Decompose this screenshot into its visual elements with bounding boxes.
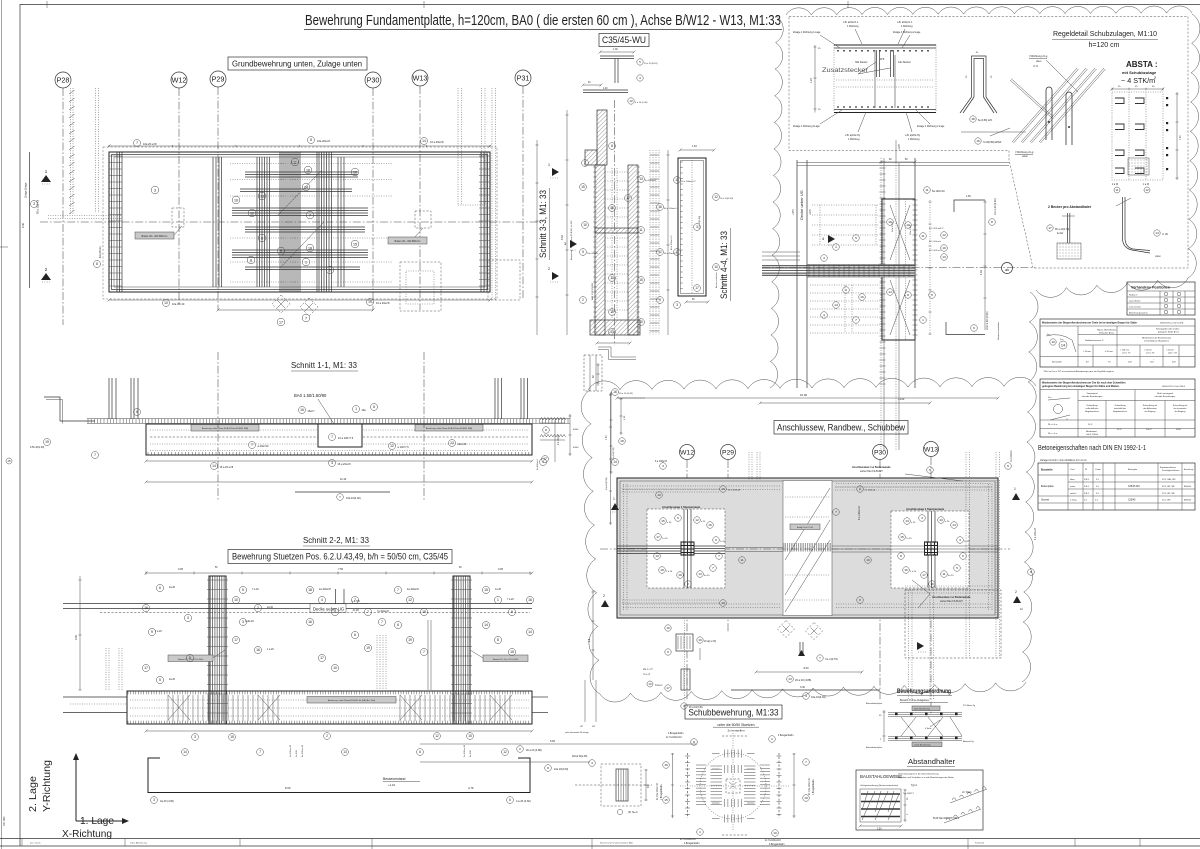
svg-text:10a 20w=8: 10a 20w=8 bbox=[587, 253, 599, 255]
svg-text:Expositionsklasse: Expositionsklasse bbox=[1160, 466, 1177, 469]
svg-text:16a 20w=8: 16a 20w=8 bbox=[317, 139, 330, 143]
svg-text:12: 12 bbox=[1145, 188, 1149, 192]
svg-text:C35/45 WU: C35/45 WU bbox=[1128, 486, 1140, 488]
svg-text:16: 16 bbox=[664, 763, 668, 767]
svg-text:4∅: 4∅ bbox=[1086, 361, 1089, 364]
svg-text:11: 11 bbox=[925, 188, 929, 192]
svg-text:6: 6 bbox=[509, 798, 511, 802]
svg-text:90 a 14(2.70): 90 a 14(2.70) bbox=[1055, 228, 1069, 231]
svg-text:3: 3 bbox=[662, 464, 664, 468]
svg-text:~ 4 STK/m: ~ 4 STK/m bbox=[1121, 76, 1155, 85]
svg-text:P29: P29 bbox=[212, 75, 225, 84]
svg-text:4a 100: 4a 100 bbox=[470, 750, 472, 757]
svg-text:Bewehrung Stuetzen Pos. 6.2.U.: Bewehrung Stuetzen Pos. 6.2.U.43,49, b/h… bbox=[232, 552, 448, 562]
svg-text:14: 14 bbox=[484, 623, 488, 627]
svg-text:Anschlussew, Randbew., Schubbe: Anschlussew, Randbew., Schubbew bbox=[777, 423, 905, 433]
svg-text:8: 8 bbox=[310, 138, 312, 142]
svg-text:Unterstützungen für die obere: Unterstützungen für die obere Bewehrung bbox=[898, 773, 939, 776]
svg-text:Schweißung: Schweißung bbox=[1086, 405, 1097, 407]
svg-text:1 a 20: 1 a 20 bbox=[267, 648, 274, 651]
svg-text:1.Bougainhahn: 1.Bougainhahn bbox=[684, 843, 700, 845]
svg-text:> 100 mm: > 100 mm bbox=[1120, 349, 1129, 352]
svg-text:8: 8 bbox=[96, 262, 98, 266]
svg-text:Bewehrungsnachw.: Bewehrungsnachw. bbox=[1129, 311, 1148, 314]
svg-text:4a 100w=8: 4a 100w=8 bbox=[407, 588, 419, 591]
svg-text:14: 14 bbox=[212, 464, 216, 468]
svg-text:P30: P30 bbox=[367, 76, 380, 85]
svg-text:Schnitt 2-2, M1: 33: Schnitt 2-2, M1: 33 bbox=[303, 535, 369, 545]
svg-text:Bemerkung: Bemerkung bbox=[1184, 469, 1193, 471]
svg-text:Schnitt 4-4, M1: 33: Schnitt 4-4, M1: 33 bbox=[719, 231, 729, 299]
svg-text:P30: P30 bbox=[874, 449, 886, 456]
svg-text:19: 19 bbox=[408, 638, 412, 642]
svg-text:2x 10a 100w=10: 2x 10a 100w=10 bbox=[809, 777, 811, 795]
svg-text:2a 100w=8: 2a 100w=8 bbox=[319, 588, 331, 591]
svg-text:oder < 3∅: oder < 3∅ bbox=[1168, 352, 1177, 355]
svg-text:17: 17 bbox=[666, 686, 670, 690]
svg-text:o.B. a(20w %): o.B. a(20w %) bbox=[905, 134, 920, 137]
svg-text:12: 12 bbox=[658, 250, 662, 254]
svg-text:2: 2 bbox=[584, 161, 586, 165]
svg-text:der Außenseite: der Außenseite bbox=[1143, 407, 1157, 410]
svg-text:18: 18 bbox=[308, 246, 312, 250]
svg-text:1: 1 bbox=[613, 497, 615, 501]
svg-text:4a 20: 4a 20 bbox=[948, 575, 954, 577]
svg-text:Schnitt 3-3, M1: 33: Schnitt 3-3, M1: 33 bbox=[538, 190, 548, 258]
svg-text:9: 9 bbox=[659, 298, 661, 302]
svg-text:8: 8 bbox=[547, 766, 549, 770]
svg-text:Verlegeanordnung (Bestossunter: Verlegeanordnung (Bestossunterkante) bbox=[860, 784, 898, 787]
svg-text:∅zul: ∅zul bbox=[1070, 468, 1075, 471]
svg-text:unten Bewehrung: unten Bewehrung bbox=[914, 744, 931, 747]
svg-text:2∅a ∅ 1∅: 2∅a ∅ 1∅ bbox=[891, 222, 894, 232]
svg-text:18: 18 bbox=[971, 117, 975, 121]
svg-text:Besseverstand: Besseverstand bbox=[383, 777, 406, 781]
svg-text:10a 16(2.40): 10a 16(2.40) bbox=[346, 496, 361, 500]
svg-text:10 a 20 (F.01): 10 a 20 (F.01) bbox=[644, 63, 658, 65]
svg-text:Index AEnderung: Index AEnderung bbox=[130, 842, 148, 845]
svg-text:B500 A: B500 A bbox=[1184, 485, 1191, 488]
svg-text:Abstandhalter: Abstandhalter bbox=[908, 757, 956, 766]
svg-text:17: 17 bbox=[543, 457, 547, 461]
svg-text:16: 16 bbox=[708, 523, 712, 527]
svg-text:5.60: 5.60 bbox=[550, 739, 556, 743]
svg-text:20∅: 20∅ bbox=[1172, 361, 1176, 364]
svg-text:13: 13 bbox=[788, 677, 792, 681]
svg-text:+1.00: +1.00 bbox=[898, 398, 905, 401]
svg-text:∅: ∅ bbox=[1066, 418, 1068, 421]
svg-text:16 a 10 (2.70): 16 a 10 (2.70) bbox=[722, 275, 724, 288]
svg-text:außerhalb des: außerhalb des bbox=[1086, 408, 1099, 410]
svg-text:XC1, W0: XC1, W0 bbox=[1162, 500, 1171, 502]
svg-text:1 Richtung: 1 Richtung bbox=[901, 25, 913, 28]
svg-text:Abstand 2g: Abstand 2g bbox=[963, 740, 974, 743]
svg-text:X-Richtung: X-Richtung bbox=[62, 828, 112, 840]
svg-text:18: 18 bbox=[620, 439, 624, 443]
svg-text:1.Bougainhahn: 1.Bougainhahn bbox=[813, 779, 815, 795]
svg-text:16: 16 bbox=[904, 568, 908, 572]
svg-text:100 ∅: 100 ∅ bbox=[1146, 428, 1152, 431]
svg-text:10: 10 bbox=[333, 666, 337, 670]
svg-text:7 a 20: 7 a 20 bbox=[155, 630, 162, 633]
svg-text:40 a 100w=1.2: 40 a 100w=1.2 bbox=[664, 208, 679, 210]
svg-text:13: 13 bbox=[610, 330, 614, 334]
svg-text:15: 15 bbox=[230, 735, 234, 739]
svg-text:8: 8 bbox=[991, 220, 993, 224]
svg-text:1: 1 bbox=[835, 245, 837, 249]
svg-text:10: 10 bbox=[639, 320, 643, 324]
svg-text:7: 7 bbox=[259, 750, 261, 754]
svg-text:12: 12 bbox=[714, 195, 718, 199]
svg-text:C35/45-WU: C35/45-WU bbox=[602, 35, 646, 45]
svg-text:16: 16 bbox=[300, 408, 304, 412]
svg-text:-0.10: -0.10 bbox=[352, 608, 359, 612]
svg-text:Decke ueber UG: Decke ueber UG bbox=[799, 190, 804, 220]
svg-text:4 a 20 (4.60): 4 a 20 (4.60) bbox=[516, 799, 531, 803]
svg-text:10: 10 bbox=[353, 170, 357, 174]
svg-text:der Biegung: der Biegung bbox=[1145, 411, 1156, 413]
svg-text:Besser verstehen: Besser verstehen bbox=[715, 272, 718, 288]
svg-text:7: 7 bbox=[712, 566, 714, 570]
svg-text:17: 17 bbox=[922, 573, 926, 577]
svg-text:14: 14 bbox=[610, 276, 614, 280]
svg-text:4: 4 bbox=[959, 538, 961, 542]
svg-text:Zulage 1 Richtung 1.Lage: Zulage 1 Richtung 1.Lage bbox=[793, 31, 821, 34]
svg-text:16: 16 bbox=[658, 205, 662, 209]
svg-text:< 20 mm: < 20 mm bbox=[1083, 350, 1091, 353]
svg-text:1.63: 1.63 bbox=[692, 145, 697, 148]
svg-text:der Innenseite: der Innenseite bbox=[1174, 407, 1188, 410]
svg-text:ruhende Einwirkungen: ruhende Einwirkungen bbox=[1155, 395, 1177, 398]
svg-text:4a 20: 4a 20 bbox=[169, 678, 176, 681]
svg-text:16: 16 bbox=[613, 390, 617, 394]
svg-text:19: 19 bbox=[368, 300, 372, 304]
svg-text:3: 3 bbox=[154, 188, 156, 192]
svg-text:BAUSTAHLGEWEBE: BAUSTAHLGEWEBE bbox=[860, 774, 902, 779]
svg-text:16: 16 bbox=[698, 638, 702, 642]
svg-text:8∅+10D w 2: 8∅+10D w 2 bbox=[929, 249, 942, 252]
svg-text:6 a 100w=8: 6 a 100w=8 bbox=[1035, 527, 1037, 540]
svg-text:2x 7a 100w=10: 2x 7a 100w=10 bbox=[680, 839, 696, 841]
svg-text:500∅: 500∅ bbox=[1176, 428, 1181, 431]
svg-text:7: 7 bbox=[94, 453, 96, 457]
svg-text:+4.05: +4.05 bbox=[899, 143, 901, 150]
svg-text:8: 8 bbox=[511, 610, 513, 614]
svg-text:15: 15 bbox=[581, 185, 585, 189]
svg-text:8: 8 bbox=[261, 236, 263, 240]
svg-text:7: 7 bbox=[354, 598, 356, 602]
svg-text:6: 6 bbox=[280, 249, 282, 253]
svg-text:14: 14 bbox=[952, 523, 956, 527]
svg-text:3: 3 bbox=[676, 303, 678, 307]
svg-text:4·s−d: 4·s−d bbox=[643, 672, 651, 676]
svg-text:10 a 100w=1.2: 10 a 100w=1.2 bbox=[681, 181, 696, 183]
svg-text:D m: D m bbox=[1047, 334, 1051, 336]
svg-text:Biegebereiches: Biegebereiches bbox=[1085, 411, 1099, 413]
svg-text:rechtwinklig zur Biegeebene: rechtwinklig zur Biegeebene bbox=[1144, 340, 1170, 343]
svg-text:13: 13 bbox=[343, 750, 347, 754]
svg-text:1.50: 1.50 bbox=[966, 195, 971, 198]
svg-text:Y-Richtung 2.Lg: Y-Richtung 2.Lg bbox=[1015, 150, 1034, 154]
svg-text:D m: D m bbox=[1048, 397, 1052, 399]
svg-text:9: 9 bbox=[859, 487, 861, 491]
svg-text:10∅: 10∅ bbox=[1128, 361, 1132, 364]
svg-text:7: 7 bbox=[367, 610, 369, 614]
svg-text:15: 15 bbox=[353, 242, 357, 246]
svg-text:30∅a W(1.08): 30∅a W(1.08) bbox=[572, 755, 587, 758]
svg-text:2: 2 bbox=[257, 606, 259, 610]
svg-text:12: 12 bbox=[390, 444, 394, 448]
svg-text:3: 3 bbox=[823, 313, 825, 317]
svg-text:2x 7a 100w=10: 2x 7a 100w=10 bbox=[666, 737, 682, 739]
svg-text:a Innig: a Innig bbox=[1070, 500, 1077, 502]
svg-text:5: 5 bbox=[931, 293, 933, 297]
svg-text:gebogene Stäbe [D m]: gebogene Stäbe [D m] bbox=[1158, 331, 1179, 334]
svg-text:Anschlussbew 1 w Bodenwande: Anschlussbew 1 w Bodenwande bbox=[852, 466, 891, 469]
svg-text:3: 3 bbox=[696, 225, 698, 229]
svg-text:Bauteile: Bauteile bbox=[1041, 468, 1053, 472]
svg-text:10: 10 bbox=[164, 301, 168, 305]
svg-text:10: 10 bbox=[648, 682, 652, 686]
svg-text:* Wert von D m = 15∅ ist ausre: * Wert von D m = 15∅ ist ausreichend, Ab… bbox=[1043, 370, 1115, 373]
svg-text:1a 20: 1a 20 bbox=[720, 541, 726, 543]
svg-text:20w=20: 20w=20 bbox=[458, 443, 467, 446]
svg-text:Typ SW∅Y: Typ SW∅Y bbox=[903, 792, 915, 795]
svg-text:Bewehrung: siehe Plaene F0-B-0: Bewehrung: siehe Plaene F0-B-021 bis 026… bbox=[202, 427, 249, 430]
svg-text:9.60: 9.60 bbox=[803, 666, 809, 670]
svg-text:7a ∅(0.76): 7a ∅(0.76) bbox=[825, 657, 838, 661]
svg-text:5a 100w=8: 5a 100w=8 bbox=[645, 180, 657, 182]
svg-text:2a·s−∅: 2a·s−∅ bbox=[643, 667, 653, 671]
svg-text:5133 Nier DIN 15T/ SW-L: 5133 Nier DIN 15T/ SW-L bbox=[933, 817, 960, 820]
svg-text:Nicht vorwiegend: Nicht vorwiegend bbox=[1157, 392, 1174, 395]
svg-text:Zusatzstecker: Zusatzstecker bbox=[822, 67, 869, 74]
svg-text:4: 4 bbox=[805, 694, 807, 698]
svg-text:16a 20 w=8: 16a 20 w=8 bbox=[143, 142, 157, 146]
svg-text:Stuetze: Stuetze bbox=[1041, 499, 1050, 502]
svg-text:h=120 cm: h=120 cm bbox=[1089, 42, 1120, 49]
svg-text:2% Weiss 2g: 2% Weiss 2g bbox=[963, 705, 976, 707]
svg-text:Y-Richtung: Y-Richtung bbox=[41, 760, 53, 812]
svg-text:7a 100∅10: 7a 100∅10 bbox=[1010, 450, 1013, 462]
svg-text:4.40: 4.40 bbox=[21, 222, 25, 228]
svg-text:10 a 10(2.50): 10 a 10(2.50) bbox=[720, 198, 733, 200]
svg-text:10: 10 bbox=[714, 265, 718, 269]
svg-text:7: 7 bbox=[718, 554, 720, 558]
svg-text:1 Richtung: 1 Richtung bbox=[847, 25, 859, 28]
svg-text:2 Bougainhahn: 2 Bougainhahn bbox=[778, 735, 794, 737]
svg-text:2 a 20: 2 a 20 bbox=[910, 571, 917, 573]
svg-text:16: 16 bbox=[528, 598, 532, 602]
svg-text:7: 7 bbox=[855, 318, 857, 322]
svg-text:11: 11 bbox=[293, 160, 297, 164]
svg-text:5: 5 bbox=[962, 554, 964, 558]
svg-text:19: 19 bbox=[930, 582, 934, 586]
svg-text:Normalfall: Normalfall bbox=[1052, 361, 1062, 364]
svg-text:40 a 100w=1.2: 40 a 100w=1.2 bbox=[671, 235, 673, 250]
svg-text:16: 16 bbox=[666, 626, 670, 630]
svg-text:5: 5 bbox=[1030, 570, 1032, 574]
svg-text:2 a 20: 2 a 20 bbox=[666, 571, 673, 573]
svg-text:17: 17 bbox=[279, 320, 283, 324]
svg-text:7: 7 bbox=[835, 510, 837, 514]
svg-text:oben Bewehrung: oben Bewehrung bbox=[914, 708, 931, 711]
svg-text:16: 16 bbox=[976, 139, 980, 143]
svg-text:3+6a 20: 3+6a 20 bbox=[245, 620, 254, 623]
svg-text:2x 10a 100w=10: 2x 10a 100w=10 bbox=[657, 782, 659, 800]
svg-text:40/40: 40/40 bbox=[573, 447, 579, 449]
svg-text:W13: W13 bbox=[924, 446, 938, 453]
svg-text:2: 2 bbox=[771, 737, 773, 741]
svg-text:2: 2 bbox=[687, 582, 689, 586]
svg-text:19: 19 bbox=[422, 610, 426, 614]
svg-text:Bewehrungsanordnung: Bewehrungsanordnung bbox=[897, 689, 951, 695]
svg-text:Bereich N ohne Zulagebew.: Bereich N ohne Zulagebew. bbox=[900, 699, 930, 702]
svg-text:Hdk Stecker: Hdk Stecker bbox=[855, 61, 868, 64]
svg-text:> 50 mm: > 50 mm bbox=[1144, 349, 1152, 352]
svg-text:8: 8 bbox=[250, 258, 252, 262]
svg-text:Feuchtigkeitsklasse: Feuchtigkeitsklasse bbox=[1162, 469, 1180, 472]
svg-text:4 Seile: 4 Seile bbox=[925, 728, 932, 730]
svg-text:Anschlussbew 1 Stuetzenraum: Anschlussbew 1 Stuetzenraum bbox=[662, 505, 701, 509]
svg-text:13: 13 bbox=[450, 441, 454, 445]
svg-text:Bewehrung: siehe Plaene F0-B-0: Bewehrung: siehe Plaene F0-B-021 bis 026… bbox=[426, 427, 473, 430]
svg-text:19: 19 bbox=[804, 796, 808, 800]
svg-text:1∅∅ a 2∅ (2.4∅): 1∅∅ a 2∅ (2.4∅) bbox=[986, 311, 989, 330]
svg-text:3.00: 3.00 bbox=[498, 567, 504, 571]
svg-text:5: 5 bbox=[242, 588, 244, 592]
svg-text:F0-B-020: F0-B-020 bbox=[975, 843, 985, 845]
svg-text:Zulage 1 Richtung 2 Lage: Zulage 1 Richtung 2 Lage bbox=[917, 125, 945, 128]
svg-text:Y-Richtung 2.Lg: Y-Richtung 2.Lg bbox=[1029, 54, 1048, 58]
svg-text:14: 14 bbox=[888, 290, 892, 294]
svg-text:4a 20: 4a 20 bbox=[704, 575, 710, 577]
svg-text:90 a 10(2.40): 90 a 10(2.40) bbox=[37, 200, 40, 214]
svg-text:5: 5 bbox=[929, 468, 931, 472]
svg-text:BA0 1.50/1.50/90: BA0 1.50/1.50/90 bbox=[591, 282, 594, 300]
svg-text:Stuetze UG - Pos. 6.2.U.43,45: Stuetze UG - Pos. 6.2.U.43,45 bbox=[493, 658, 519, 661]
svg-text:Mindestwerte der Betondeckung: Mindestwerte der Betondeckung bbox=[1142, 337, 1171, 340]
svg-text:17: 17 bbox=[320, 656, 324, 660]
svg-text:11∅ a 20 (2.4∅): 11∅ a 20 (2.4∅) bbox=[994, 198, 997, 215]
svg-text:10: 10 bbox=[939, 518, 943, 522]
svg-text:20 ∅: 20 ∅ bbox=[1088, 423, 1093, 426]
svg-text:8: 8 bbox=[907, 293, 909, 297]
svg-text:3: 3 bbox=[242, 620, 244, 624]
svg-text:2.Bougainhahn: 2.Bougainhahn bbox=[769, 844, 785, 846]
svg-text:9: 9 bbox=[151, 630, 153, 634]
svg-text:15: 15 bbox=[45, 440, 49, 444]
svg-text:4: 4 bbox=[699, 830, 701, 834]
svg-text:2: 2 bbox=[326, 734, 328, 738]
svg-text:7: 7 bbox=[251, 443, 253, 447]
svg-text:4+0/w: 4+0/w bbox=[1057, 233, 1064, 235]
svg-text:4.76: 4.76 bbox=[468, 786, 474, 790]
svg-text:DIN EN 1992-1-1 Tab 8.1 DE A: DIN EN 1992-1-1 Tab 8.1 DE A bbox=[1160, 322, 1184, 325]
svg-text:1.00: 1.00 bbox=[1180, 135, 1182, 140]
svg-text:12: 12 bbox=[675, 178, 679, 182]
svg-text:siehe Plan F0-B-027: siehe Plan F0-B-027 bbox=[860, 470, 883, 473]
svg-text:Bewehrung Fundamentplatte, h=1: Bewehrung Fundamentplatte, h=120cm, BA0 … bbox=[305, 13, 781, 29]
svg-text:4a 100w=10: 4a 100w=10 bbox=[302, 744, 304, 757]
svg-text:16: 16 bbox=[860, 295, 864, 299]
svg-text:uebr stimmende 40 zulage: uebr stimmende 40 zulage bbox=[565, 731, 589, 734]
svg-text:2a 100w=10: 2a 100w=10 bbox=[464, 744, 466, 757]
svg-text:4: 4 bbox=[334, 610, 336, 614]
svg-text:17: 17 bbox=[695, 286, 699, 290]
svg-text:Schweißung auf: Schweißung auf bbox=[1143, 405, 1158, 407]
svg-text:5: 5 bbox=[956, 566, 958, 570]
svg-text:17: 17 bbox=[234, 638, 238, 642]
svg-text:16 a 20w=8: 16 a 20w=8 bbox=[338, 463, 352, 466]
svg-text:1 Richtung: 1 Richtung bbox=[848, 138, 860, 141]
svg-text:7: 7 bbox=[397, 588, 399, 592]
svg-text:oben: oben bbox=[1036, 60, 1042, 63]
svg-text:XC2, XA1, WF: XC2, XA1, WF bbox=[1162, 478, 1176, 481]
svg-text:C35/45: C35/45 bbox=[1128, 500, 1136, 502]
svg-text:7: 7 bbox=[423, 650, 425, 654]
svg-text:12: 12 bbox=[435, 734, 439, 738]
svg-text:Stabdurchmesser ∅: Stabdurchmesser ∅ bbox=[1085, 339, 1104, 342]
svg-text:13: 13 bbox=[698, 572, 702, 576]
svg-text:Liste ersetzt: Liste ersetzt bbox=[1129, 305, 1141, 308]
svg-text:10a 30×10: 10a 30×10 bbox=[172, 302, 185, 306]
svg-text:4: 4 bbox=[591, 761, 593, 765]
svg-text:P31: P31 bbox=[517, 74, 530, 83]
svg-text:5: 5 bbox=[582, 250, 584, 254]
svg-text:13: 13 bbox=[905, 519, 909, 523]
svg-text:≥ 20 mm: ≥ 20 mm bbox=[1105, 350, 1113, 353]
svg-text:16a: 16a bbox=[362, 409, 367, 412]
svg-text:1: 1 bbox=[922, 318, 924, 322]
svg-text:13: 13 bbox=[260, 194, 264, 198]
svg-text:Mindestwerte der Biegerollendu: Mindestwerte der Biegerollendurchmesser … bbox=[1042, 322, 1138, 325]
svg-text:7 a 20: 7 a 20 bbox=[507, 598, 514, 601]
svg-text:6: 6 bbox=[159, 586, 161, 590]
svg-text:16: 16 bbox=[308, 620, 312, 624]
svg-text:Anschlussbew 1 w Bodenwande: Anschlussbew 1 w Bodenwande bbox=[932, 596, 971, 599]
svg-text:der Biegung: der Biegung bbox=[1175, 411, 1186, 413]
svg-text:Betoneigenschaften nach DIN EN: Betoneigenschaften nach DIN EN 1992-1-1 bbox=[1038, 445, 1146, 452]
svg-text:15: 15 bbox=[510, 650, 514, 654]
svg-text:2: 2 bbox=[519, 747, 521, 751]
svg-text:Typ A: Typ A bbox=[911, 784, 917, 787]
svg-text:∅ 20: ∅ 20 bbox=[1162, 232, 1168, 236]
svg-text:1: 1 bbox=[548, 163, 550, 167]
svg-text:7.50: 7.50 bbox=[338, 567, 344, 571]
svg-text:Regeldetail Schubzulagen, M1:1: Regeldetail Schubzulagen, M1:10 bbox=[1053, 29, 1157, 38]
svg-text:gebogene Bewehrung bei einmali: gebogene Bewehrung bei einmaligen Biegen… bbox=[1042, 385, 1120, 388]
svg-text:P29: P29 bbox=[722, 449, 734, 456]
svg-text:gez. bearb.: gez. bearb. bbox=[30, 842, 41, 845]
svg-text:3.00: 3.00 bbox=[178, 567, 184, 571]
svg-text:12: 12 bbox=[942, 233, 946, 237]
svg-text:unten: unten bbox=[1155, 255, 1161, 258]
svg-text:Bodenplatte: Bodenplatte bbox=[1041, 485, 1054, 488]
svg-text:C∅+∅: C∅+∅ bbox=[655, 684, 662, 687]
svg-text:19: 19 bbox=[866, 558, 870, 562]
svg-text:14: 14 bbox=[304, 185, 308, 189]
svg-text:2.30: 2.30 bbox=[877, 829, 882, 831]
svg-text:7a 100w=8: 7a 100w=8 bbox=[865, 490, 877, 492]
svg-text:und > 7∅: und > 7∅ bbox=[1122, 352, 1131, 355]
svg-text:2. Lage: 2. Lage bbox=[27, 776, 39, 812]
svg-text:18: 18 bbox=[660, 568, 664, 572]
svg-text:100 1400: 100 1400 bbox=[4, 816, 6, 826]
svg-text:5: 5 bbox=[159, 678, 161, 682]
svg-text:6a 400w=2: 6a 400w=2 bbox=[537, 458, 539, 470]
svg-text:4.30: 4.30 bbox=[980, 270, 983, 275]
